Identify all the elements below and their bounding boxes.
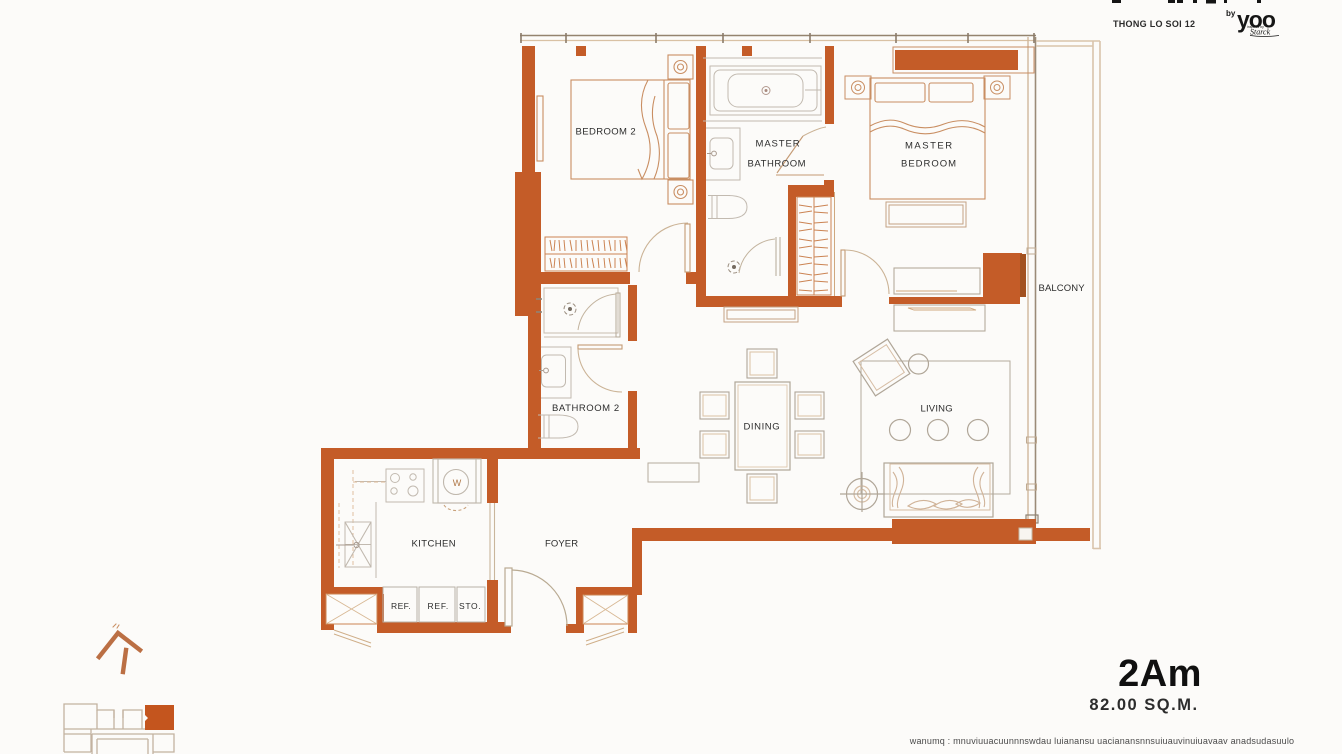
svg-text:MASTER: MASTER	[905, 141, 953, 152]
svg-text:REF.: REF.	[391, 601, 411, 611]
svg-text:BATHROOM 2: BATHROOM 2	[552, 403, 620, 414]
svg-text:BEDROOM: BEDROOM	[901, 159, 957, 170]
svg-text:W: W	[453, 478, 462, 488]
svg-text:LIVING: LIVING	[921, 404, 954, 415]
svg-text:by: by	[1226, 9, 1236, 18]
svg-text:Starck: Starck	[1250, 28, 1271, 37]
svg-text:REF.: REF.	[428, 601, 449, 611]
svg-text:STO.: STO.	[459, 601, 481, 611]
svg-text:BALCONY: BALCONY	[1039, 283, 1086, 294]
svg-text:2Am: 2Am	[1118, 653, 1202, 695]
svg-text:MASTER: MASTER	[756, 139, 801, 150]
svg-text:THONG LO SOI 12: THONG LO SOI 12	[1113, 19, 1196, 29]
svg-text:82.00 SQ.M.: 82.00 SQ.M.	[1089, 696, 1198, 714]
svg-text:BATHROOM: BATHROOM	[748, 159, 807, 170]
svg-text:FOYER: FOYER	[545, 539, 579, 550]
svg-text:wanumq : mnuviuuacuunnnswdau l: wanumq : mnuviuuacuunnnswdau luianansu u…	[909, 736, 1294, 746]
svg-text:DINING: DINING	[744, 422, 781, 433]
svg-text:BEDROOM 2: BEDROOM 2	[576, 127, 637, 138]
svg-text:KITCHEN: KITCHEN	[412, 539, 457, 550]
